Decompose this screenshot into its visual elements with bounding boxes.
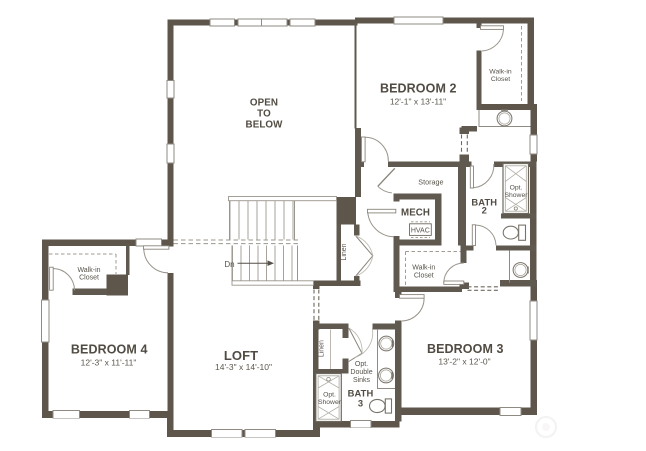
- svg-text:BEDROOM 2: BEDROOM 2: [380, 81, 457, 95]
- svg-text:LOFT: LOFT: [224, 348, 258, 363]
- svg-text:12'-1" x 13'-11": 12'-1" x 13'-11": [390, 96, 446, 106]
- svg-text:BEDROOM 4: BEDROOM 4: [71, 343, 148, 357]
- svg-text:Closet: Closet: [79, 274, 99, 281]
- svg-text:Shower: Shower: [504, 192, 528, 199]
- svg-text:BEDROOM 3: BEDROOM 3: [427, 342, 504, 356]
- svg-text:Double: Double: [350, 369, 372, 376]
- svg-text:13'-2" x 12'-0": 13'-2" x 12'-0": [438, 356, 490, 366]
- svg-text:HVAC: HVAC: [411, 227, 430, 234]
- svg-text:TO: TO: [257, 109, 271, 120]
- svg-text:Opt.: Opt.: [355, 361, 368, 368]
- svg-text:Closet: Closet: [414, 272, 434, 279]
- svg-text:MECH: MECH: [401, 208, 430, 219]
- svg-text:Opt.: Opt.: [510, 184, 523, 191]
- svg-text:12'-3" x 11'-11": 12'-3" x 11'-11": [81, 357, 137, 367]
- svg-text:Dn: Dn: [224, 260, 234, 269]
- svg-text:BELOW: BELOW: [246, 120, 284, 131]
- svg-text:Linen: Linen: [319, 340, 326, 357]
- svg-text:Sinks: Sinks: [353, 377, 371, 384]
- svg-text:Opt.: Opt.: [323, 391, 336, 398]
- svg-text:Walk-in: Walk-in: [412, 264, 435, 271]
- svg-text:Walk-in: Walk-in: [489, 68, 512, 75]
- svg-text:OPEN: OPEN: [250, 98, 278, 109]
- svg-text:Shower: Shower: [318, 399, 342, 406]
- svg-text:Walk-in: Walk-in: [77, 267, 100, 274]
- svg-text:Storage: Storage: [418, 177, 443, 186]
- svg-text:Closet: Closet: [491, 76, 510, 83]
- svg-text:3: 3: [358, 397, 363, 408]
- svg-text:2: 2: [482, 205, 487, 216]
- svg-text:Linen: Linen: [341, 243, 348, 260]
- svg-text:14'-3" x 14'-10": 14'-3" x 14'-10": [215, 362, 272, 372]
